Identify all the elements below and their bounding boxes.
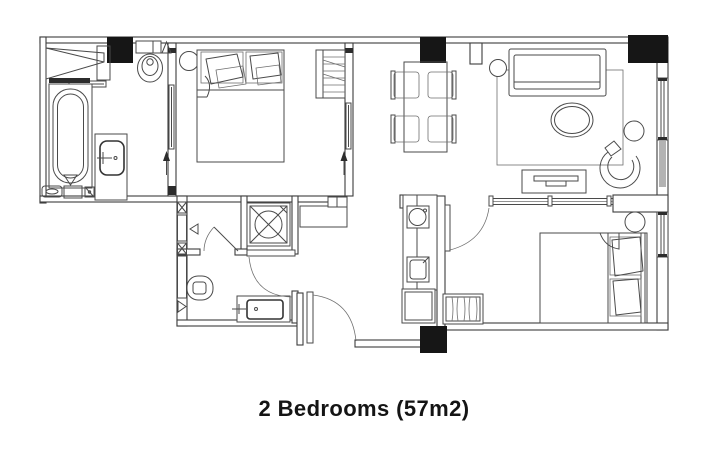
wardrobe-icon bbox=[316, 50, 345, 98]
toilet-icon bbox=[187, 276, 213, 300]
armchair-icon bbox=[600, 141, 640, 188]
dining-set bbox=[391, 62, 456, 152]
column-icon bbox=[420, 37, 446, 63]
plan-caption: 2 Bedrooms (57m2) bbox=[0, 396, 728, 422]
bathtub-icon bbox=[49, 78, 92, 188]
tv-console-icon bbox=[522, 170, 586, 193]
bedroom-1 bbox=[180, 50, 346, 162]
window-icon bbox=[657, 212, 668, 257]
kitchenette bbox=[300, 195, 437, 323]
wall-marker-triangle bbox=[190, 224, 198, 234]
door-swing-icon bbox=[445, 205, 489, 251]
vanity-sink-icon bbox=[232, 296, 290, 322]
wall-bath2-right-top bbox=[292, 196, 298, 254]
window-icon bbox=[657, 78, 668, 140]
base-cabinet-icon bbox=[402, 289, 435, 323]
dining-chair-icon bbox=[428, 71, 456, 99]
door-swing-icon bbox=[204, 227, 238, 251]
dining-table-icon bbox=[404, 62, 447, 152]
column-icon bbox=[420, 326, 447, 353]
nightstand-icon bbox=[625, 212, 645, 232]
nightstand-icon bbox=[180, 52, 199, 71]
wall-living-pier bbox=[470, 43, 482, 64]
glazed-partition bbox=[489, 196, 613, 206]
door-swing-icon bbox=[307, 292, 356, 343]
wall-entry-bottom bbox=[355, 340, 421, 347]
cooktop-icon bbox=[407, 257, 429, 282]
floorplan-page: 2 Bedrooms (57m2) bbox=[0, 0, 728, 470]
sofa-icon bbox=[509, 49, 606, 96]
dining-chair-icon bbox=[391, 115, 419, 143]
vanity-sink-icon bbox=[95, 134, 127, 200]
double-bed-icon bbox=[197, 50, 284, 162]
wall-shower-left bbox=[241, 196, 247, 254]
window-shade-panel bbox=[659, 141, 666, 187]
wall-bedroom2-top-solid bbox=[613, 195, 668, 212]
wall-end-cap bbox=[345, 48, 353, 53]
bedroom-2 bbox=[443, 212, 647, 324]
toilet-icon bbox=[136, 41, 171, 82]
bathroom-1 bbox=[42, 41, 171, 200]
side-table-icon bbox=[624, 121, 644, 141]
shower-stall-icon bbox=[247, 203, 290, 246]
door-swing-icon bbox=[247, 250, 295, 297]
dining-chair-icon bbox=[391, 71, 419, 99]
dining-chair-icon bbox=[428, 115, 456, 143]
coffee-table-icon bbox=[551, 103, 593, 137]
living-room bbox=[490, 49, 645, 193]
column-icon bbox=[107, 37, 133, 63]
kitchen-sink-icon bbox=[407, 206, 429, 228]
double-bed-icon bbox=[540, 233, 647, 323]
wall-left bbox=[40, 37, 46, 203]
wall-top bbox=[40, 37, 668, 43]
luggage-rack-icon bbox=[443, 294, 483, 324]
wall-end-cap bbox=[168, 186, 176, 195]
bathroom-2 bbox=[178, 202, 291, 322]
column-icon bbox=[628, 35, 668, 63]
side-table-icon bbox=[490, 60, 507, 77]
wall-entry-jamb bbox=[297, 293, 303, 345]
